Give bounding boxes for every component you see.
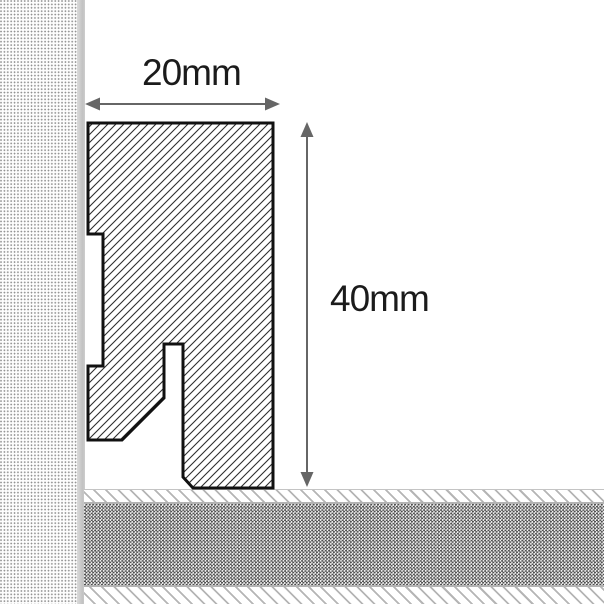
height-dimension-label: 40mm [330, 280, 429, 317]
arrow-down-head-icon [301, 472, 314, 487]
arrow-left-head-icon [85, 98, 100, 111]
profile-and-dimensions-layer [0, 0, 604, 604]
arrow-up-head-icon [301, 122, 314, 137]
skirting-profile-shape [88, 123, 273, 488]
height-dimension-arrow [301, 122, 314, 487]
width-dimension-label: 20mm [142, 54, 241, 91]
width-dimension-arrow [85, 98, 280, 111]
diagram-canvas: 20mm 40mm [0, 0, 604, 604]
arrow-right-head-icon [265, 98, 280, 111]
